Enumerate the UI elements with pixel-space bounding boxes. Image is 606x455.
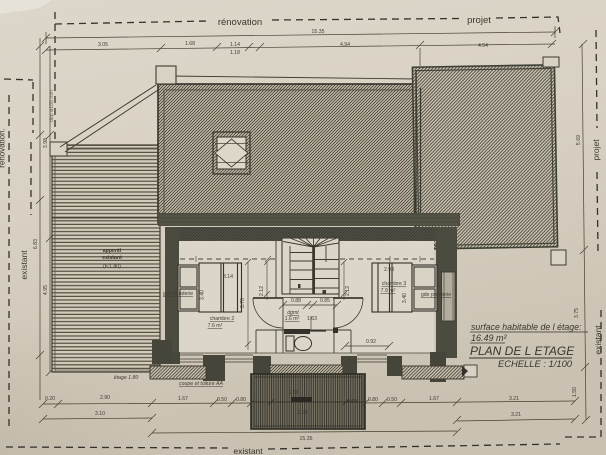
svg-text:3.10: 3.10 xyxy=(95,411,105,417)
svg-text:3.14: 3.14 xyxy=(223,274,233,280)
svg-text:surface habitable de l étage:: surface habitable de l étage: xyxy=(471,322,582,332)
svg-text:3.40: 3.40 xyxy=(200,290,206,300)
svg-text:2.93: 2.93 xyxy=(384,267,394,273)
svg-text:16.49 m²: 16.49 m² xyxy=(471,333,508,343)
svg-text:1.68: 1.68 xyxy=(185,41,195,47)
svg-text:(h:1.80): (h:1.80) xyxy=(103,264,121,270)
svg-text:2.35: 2.35 xyxy=(298,410,308,416)
svg-text:gde penderie: gde penderie xyxy=(163,291,193,297)
svg-text:0.50: 0.50 xyxy=(387,397,397,403)
svg-text:0.80: 0.80 xyxy=(236,397,246,403)
svg-text:2.12: 2.12 xyxy=(345,286,351,296)
svg-text:0.85: 0.85 xyxy=(320,298,330,304)
svg-text:2.90: 2.90 xyxy=(100,395,110,401)
svg-text:5.69: 5.69 xyxy=(576,135,582,145)
svg-text:appenti: appenti xyxy=(103,248,122,254)
svg-text:1.18: 1.18 xyxy=(230,50,240,56)
svg-text:2.12: 2.12 xyxy=(259,286,265,296)
svg-text:existant: existant xyxy=(233,446,263,455)
svg-text:projet: projet xyxy=(591,139,601,161)
svg-text:0.88: 0.88 xyxy=(291,298,301,304)
svg-text:3.21: 3.21 xyxy=(509,396,519,402)
svg-text:dep ø100 mm: dep ø100 mm xyxy=(49,90,55,122)
svg-text:chambre 2: chambre 2 xyxy=(210,316,235,322)
svg-text:15.35: 15.35 xyxy=(312,29,325,35)
svg-text:existant: existant xyxy=(102,255,122,261)
svg-text:projet: projet xyxy=(467,15,491,26)
svg-text:0.60: 0.60 xyxy=(347,399,357,405)
svg-text:1.67: 1.67 xyxy=(178,396,188,402)
svg-text:3.21: 3.21 xyxy=(511,412,521,418)
svg-text:7.9 m²: 7.9 m² xyxy=(381,288,396,294)
svg-text:0.20: 0.20 xyxy=(45,396,55,402)
svg-text:15.35: 15.35 xyxy=(300,436,313,442)
svg-text:rénovation: rénovation xyxy=(218,17,262,28)
svg-text:2.50: 2.50 xyxy=(289,390,299,396)
svg-text:4.95: 4.95 xyxy=(43,285,49,295)
svg-text:3.70: 3.70 xyxy=(240,298,246,308)
svg-text:1.6 m²: 1.6 m² xyxy=(285,316,300,322)
svg-text:existant: existant xyxy=(19,250,29,280)
svg-text:chambre 3: chambre 3 xyxy=(382,281,407,287)
svg-text:ECHELLE : 1/100: ECHELLE : 1/100 xyxy=(498,358,573,369)
svg-text:3.75: 3.75 xyxy=(574,308,580,318)
svg-text:rénovation.: rénovation. xyxy=(0,128,7,168)
svg-text:1.67: 1.67 xyxy=(429,396,439,402)
svg-text:1.63: 1.63 xyxy=(307,316,317,322)
svg-text:étage 1.80: étage 1.80 xyxy=(114,375,139,381)
svg-text:PLAN DE L ETAGE: PLAN DE L ETAGE xyxy=(470,344,575,358)
svg-text:0.50: 0.50 xyxy=(217,397,227,403)
svg-text:0.80: 0.80 xyxy=(368,397,378,403)
svg-text:existant: existant xyxy=(593,325,603,355)
svg-text:3.05: 3.05 xyxy=(98,42,108,48)
svg-text:4.54: 4.54 xyxy=(478,43,488,49)
svg-text:1.14: 1.14 xyxy=(230,42,240,48)
svg-text:gde penderie: gde penderie xyxy=(421,292,451,298)
svg-text:4.94: 4.94 xyxy=(340,42,350,48)
svg-text:3.98: 3.98 xyxy=(43,138,49,148)
svg-text:3.40: 3.40 xyxy=(402,293,408,303)
svg-text:0.92: 0.92 xyxy=(366,339,376,345)
svg-text:1.50: 1.50 xyxy=(572,387,578,397)
svg-text:7.6 m²: 7.6 m² xyxy=(208,323,223,329)
svg-text:coupe et toiture AA: coupe et toiture AA xyxy=(179,381,223,387)
svg-text:6.83: 6.83 xyxy=(33,239,39,249)
